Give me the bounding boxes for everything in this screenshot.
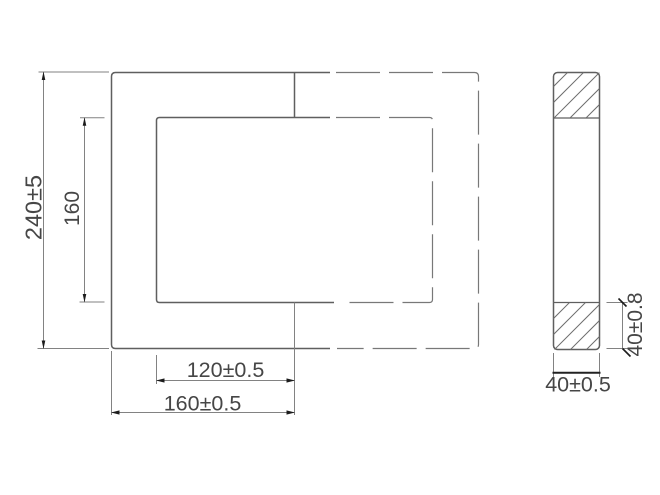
svg-text:120±0.5: 120±0.5 [187,358,265,382]
svg-text:40±0.5: 40±0.5 [545,373,611,397]
svg-text:160: 160 [61,191,84,226]
svg-text:40±0.8: 40±0.8 [624,292,647,356]
svg-text:160±0.5: 160±0.5 [164,392,242,416]
svg-text:240±5: 240±5 [21,175,47,240]
